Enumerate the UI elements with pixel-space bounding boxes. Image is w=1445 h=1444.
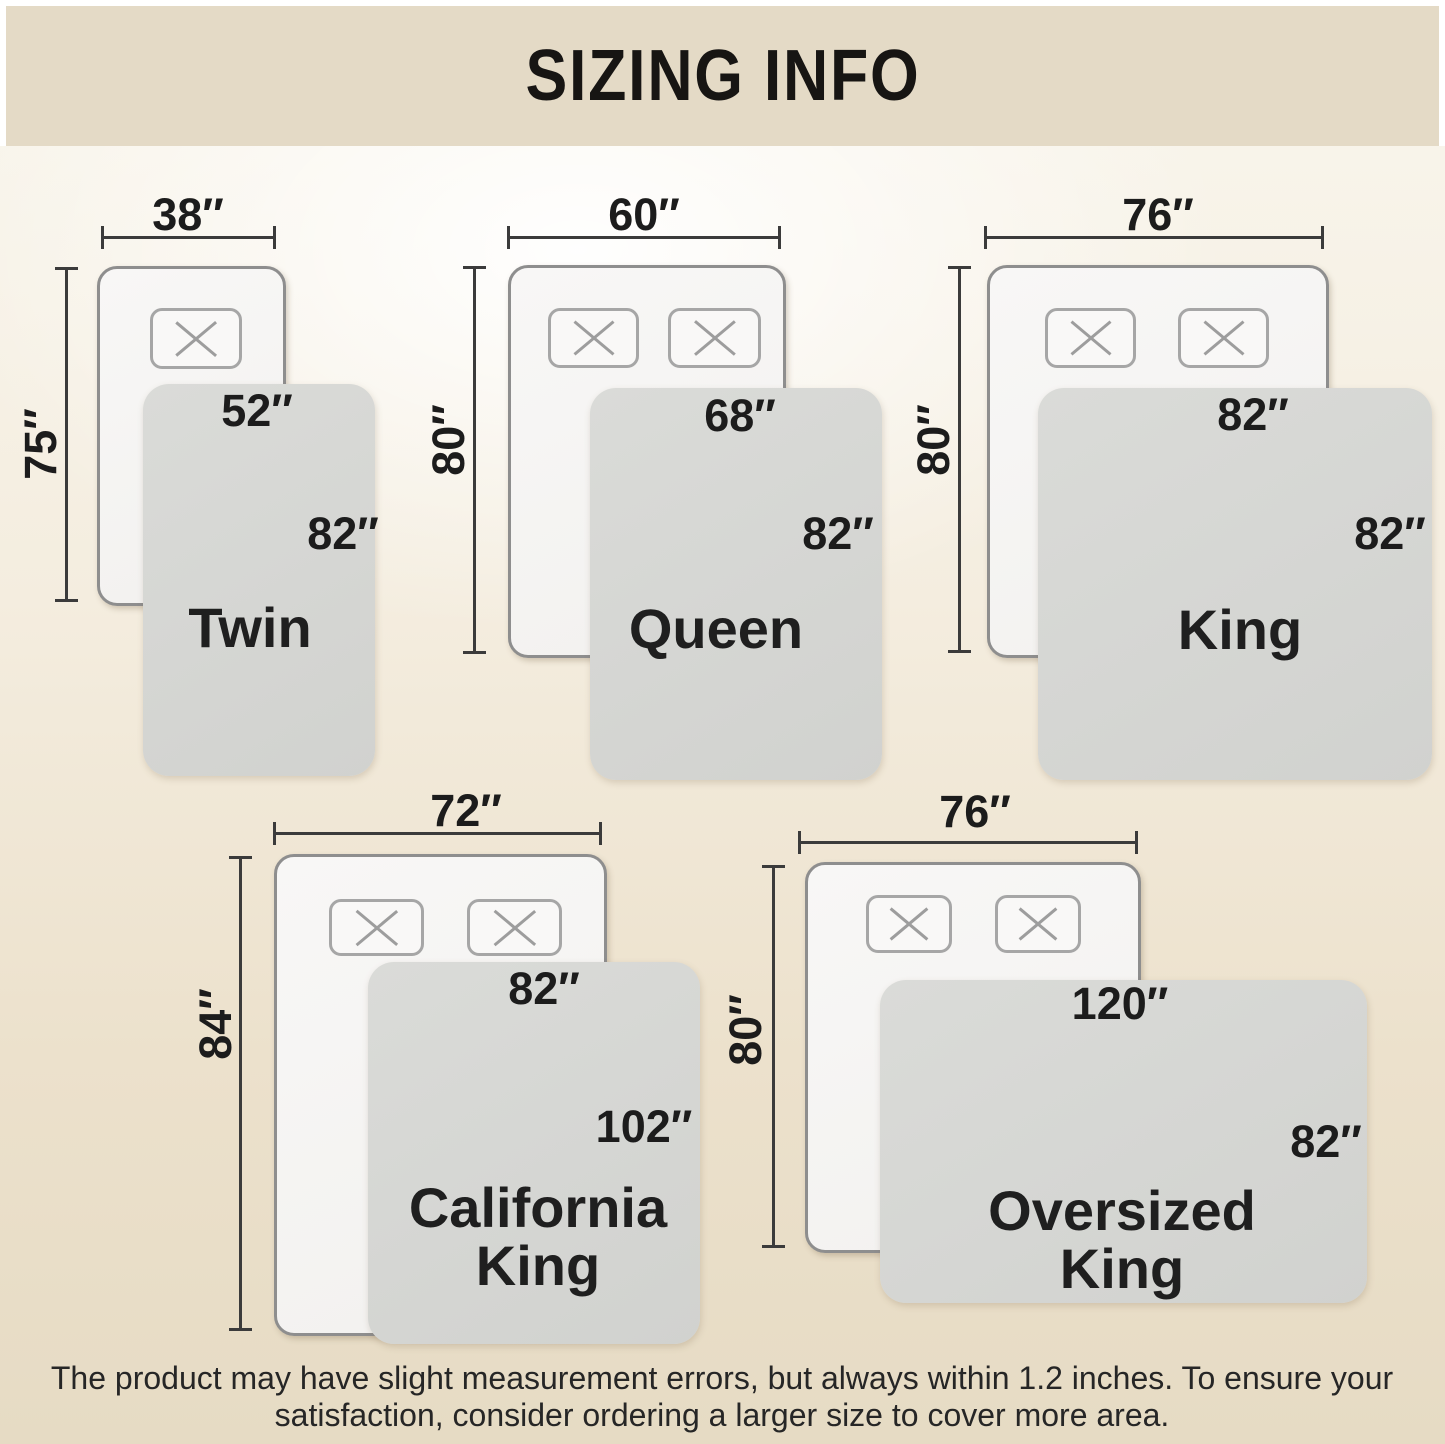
pillow-icon [548,308,639,368]
size-name-label: King [1178,601,1302,659]
blanket-length-label: 82″ [1290,1116,1362,1168]
bed-width-label: 72″ [430,785,502,837]
size-name-label: Queen [629,600,803,658]
blanket-width-label: 120″ [1072,978,1169,1030]
bed-length-label: 84″ [190,988,242,1060]
bed-width-label: 76″ [1122,189,1194,241]
blanket-width-label: 68″ [704,390,776,442]
size-name-label: California King [409,1179,667,1295]
blanket-width-label: 52″ [221,385,293,437]
bed-length-label: 80″ [423,404,475,476]
blanket-shape [1038,388,1432,780]
bed-width-label: 60″ [608,189,680,241]
bed-length-label: 75″ [15,408,67,480]
size-name-label: Twin [188,599,311,657]
blanket-shape [143,384,375,776]
pillow-icon [668,308,761,368]
pillow-icon [329,899,424,956]
bed-length-label: 80″ [720,994,772,1066]
sizing-info-page: SIZING INFO 38″ 75″ 52″ 82″ Twin 60″ 80″… [0,0,1445,1444]
blanket-length-label: 82″ [1354,508,1426,560]
blanket-width-label: 82″ [508,963,580,1015]
pillow-icon [150,308,242,369]
blanket-shape [590,388,882,780]
bed-length-label: 80″ [908,404,960,476]
pillow-icon [866,895,952,953]
length-dimension-line [239,857,242,1330]
width-dimension-line [799,841,1137,844]
blanket-width-label: 82″ [1217,389,1289,441]
header-bar: SIZING INFO [6,6,1439,146]
size-name-label: Oversized King [988,1182,1256,1298]
bed-width-label: 76″ [939,786,1011,838]
pillow-icon [467,899,562,956]
blanket-length-label: 82″ [802,508,874,560]
blanket-length-label: 82″ [307,508,379,560]
blanket-length-label: 102″ [596,1101,693,1153]
measurement-disclaimer: The product may have slight measurement … [22,1360,1422,1435]
pillow-icon [995,895,1081,953]
length-dimension-line [772,866,775,1247]
bed-width-label: 38″ [152,189,224,241]
page-title: SIZING INFO [525,35,920,117]
pillow-icon [1178,308,1269,368]
pillow-icon [1045,308,1136,368]
